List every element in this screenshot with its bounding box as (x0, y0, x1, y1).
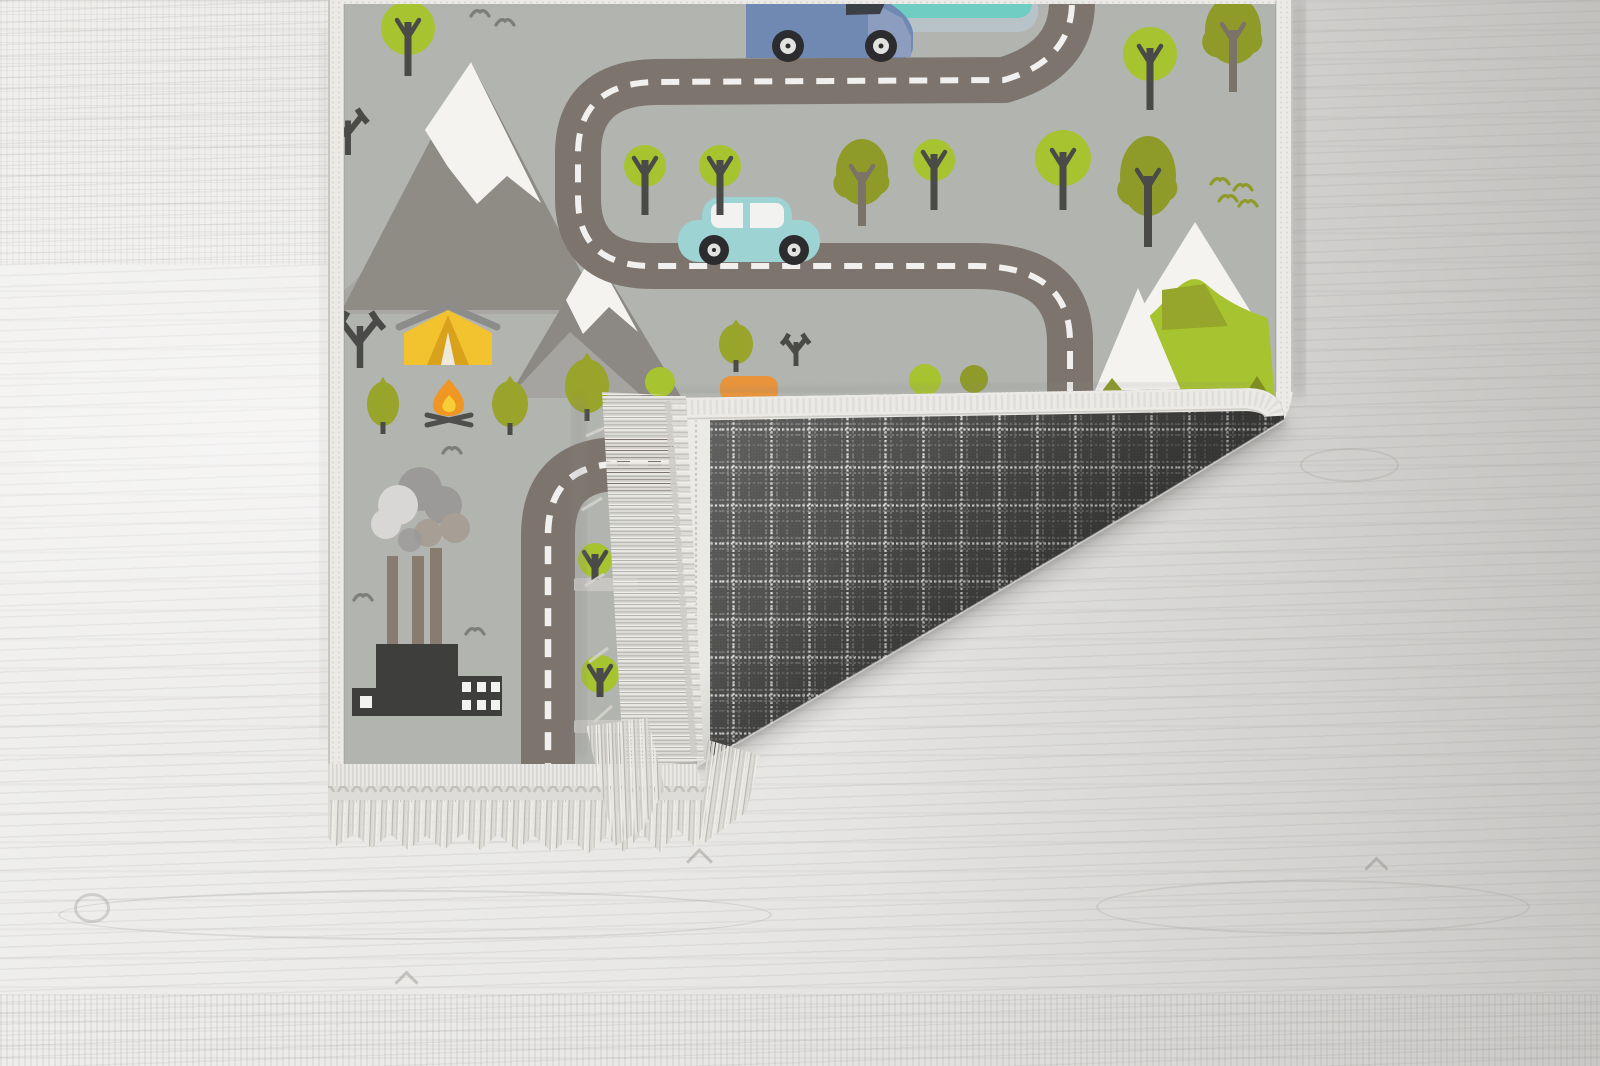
car-pillar (743, 203, 750, 228)
chimney (387, 556, 398, 648)
product-photo-scene (0, 0, 1600, 1066)
chimney (430, 548, 442, 648)
flap-edge-shade (656, 378, 1306, 780)
car-wheel (779, 235, 809, 265)
shadow-right-edge (1292, 0, 1305, 396)
shadow-left-edge (320, 30, 328, 740)
smoke-puff (398, 528, 422, 552)
tree-top-peek (645, 367, 675, 397)
smoke-puff (371, 509, 401, 539)
rug-illustration (0, 0, 1600, 1066)
chimney (412, 556, 424, 648)
van-wheel (772, 30, 804, 62)
van-wheel (865, 30, 897, 62)
factory-window (360, 696, 372, 708)
factory-building (376, 644, 458, 716)
fold-flap (656, 378, 1306, 780)
shadow-flap-fringe (572, 398, 586, 758)
car-wheel (699, 235, 729, 265)
camper-van (746, 0, 913, 62)
smoke-puff (440, 513, 470, 543)
